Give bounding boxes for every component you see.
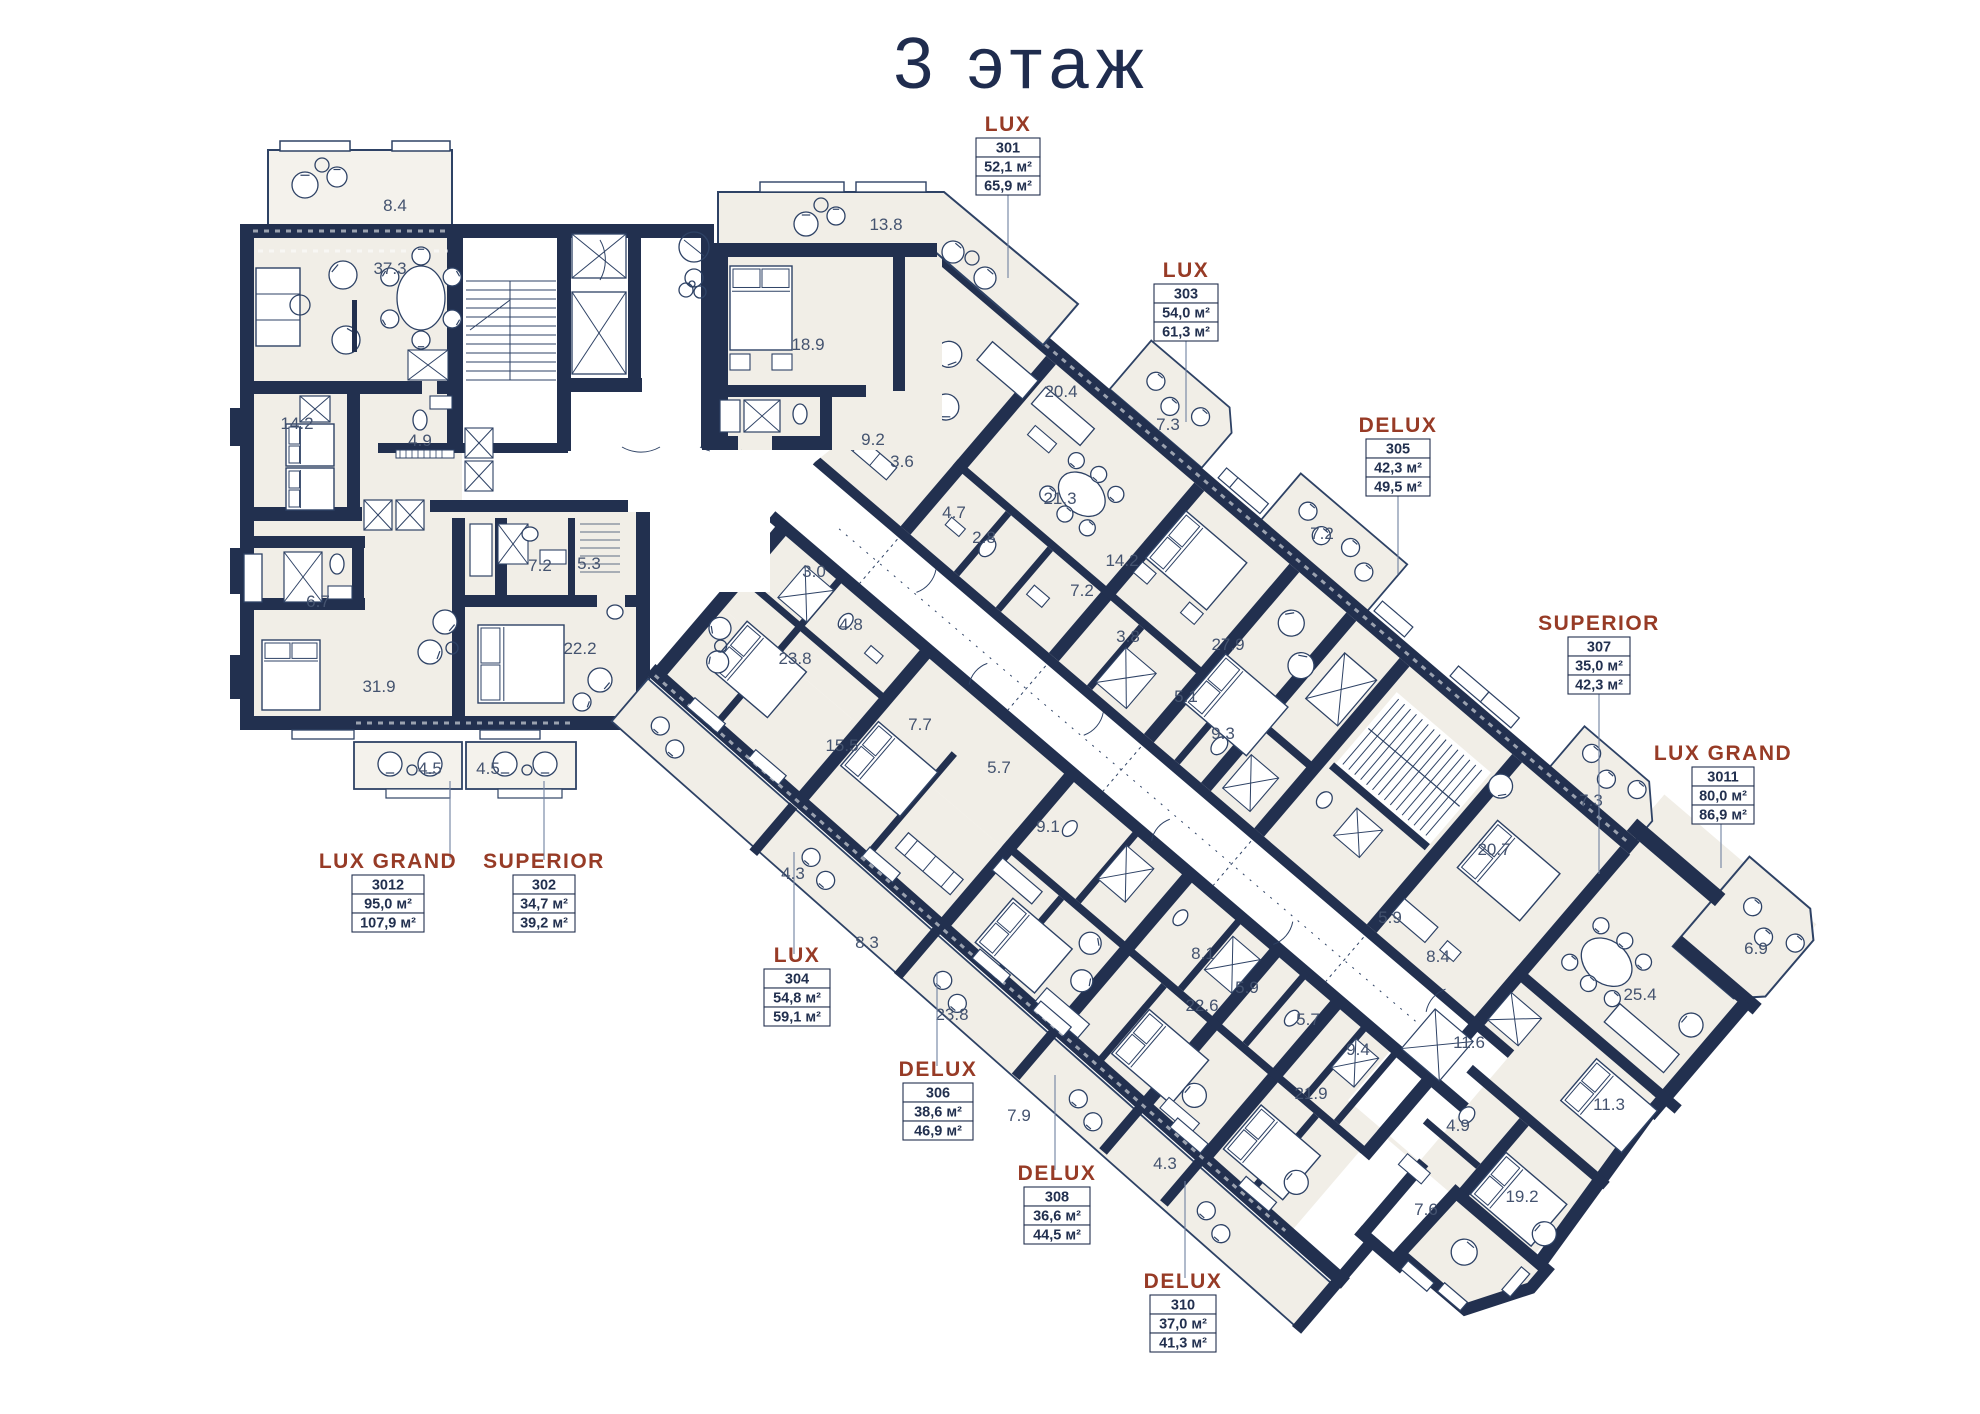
svg-text:7.9: 7.9 [1007,1106,1031,1125]
svg-text:11.6: 11.6 [1453,1033,1485,1052]
svg-text:4.8: 4.8 [839,615,863,634]
svg-text:308: 308 [1045,1190,1069,1206]
svg-text:2.8: 2.8 [972,528,996,547]
svg-text:3.6: 3.6 [890,452,914,471]
svg-text:9.3: 9.3 [1211,724,1235,743]
svg-text:42,3 м²: 42,3 м² [1374,461,1422,477]
svg-text:5.9: 5.9 [1378,908,1402,927]
svg-text:31.9: 31.9 [362,677,395,696]
svg-text:14.2: 14.2 [280,414,313,433]
svg-text:LUX: LUX [1163,259,1210,282]
svg-text:302: 302 [532,878,556,894]
svg-text:25.4: 25.4 [1623,985,1656,1004]
svg-text:306: 306 [926,1086,950,1102]
svg-text:54,0 м²: 54,0 м² [1162,306,1210,322]
svg-text:5.7: 5.7 [987,758,1011,777]
svg-text:7.6: 7.6 [1414,1200,1438,1219]
svg-text:61,3 м²: 61,3 м² [1162,325,1210,341]
svg-text:65,9 м²: 65,9 м² [984,179,1032,195]
svg-text:307: 307 [1587,640,1611,656]
svg-text:37,0 м²: 37,0 м² [1159,1317,1207,1333]
svg-text:4.5: 4.5 [418,759,442,778]
svg-text:3 этаж: 3 этаж [893,24,1151,104]
svg-text:7.2: 7.2 [1310,524,1334,543]
svg-text:80,0 м²: 80,0 м² [1699,789,1747,805]
svg-text:5.7: 5.7 [1296,1010,1320,1029]
svg-text:52,1 м²: 52,1 м² [984,160,1032,176]
svg-text:301: 301 [996,141,1020,157]
svg-text:4.5: 4.5 [476,759,500,778]
svg-text:23.8: 23.8 [778,649,811,668]
svg-text:49,5 м²: 49,5 м² [1374,480,1422,496]
svg-text:107,9 м²: 107,9 м² [360,916,416,932]
svg-text:22.6: 22.6 [1185,996,1218,1015]
svg-text:44,5 м²: 44,5 м² [1033,1228,1081,1244]
svg-text:23.8: 23.8 [935,1005,968,1024]
svg-text:SUPERIOR: SUPERIOR [1538,612,1660,635]
svg-text:7.2: 7.2 [528,556,552,575]
svg-text:41,3 м²: 41,3 м² [1159,1336,1207,1352]
svg-text:4.7: 4.7 [942,503,966,522]
svg-text:7.3: 7.3 [1156,415,1180,434]
svg-text:7.2: 7.2 [1070,581,1094,600]
svg-text:SUPERIOR: SUPERIOR [483,850,605,873]
svg-text:9.1: 9.1 [1036,817,1060,836]
svg-text:95,0 м²: 95,0 м² [364,897,412,913]
svg-text:8.4: 8.4 [1426,947,1450,966]
svg-text:19.2: 19.2 [1505,1187,1538,1206]
svg-text:3.0: 3.0 [802,562,826,581]
svg-text:4.3: 4.3 [781,864,805,883]
svg-text:3012: 3012 [372,878,404,894]
svg-text:20.7: 20.7 [1477,840,1510,859]
svg-text:86,9 м²: 86,9 м² [1699,808,1747,824]
svg-text:DELUX: DELUX [1359,414,1438,437]
svg-text:9.2: 9.2 [861,430,885,449]
svg-text:5.9: 5.9 [1235,978,1259,997]
svg-text:14.2: 14.2 [1105,551,1138,570]
svg-text:305: 305 [1386,442,1410,458]
svg-text:18.9: 18.9 [791,335,824,354]
svg-text:37.3: 37.3 [373,259,406,278]
svg-text:15.5: 15.5 [825,736,858,755]
svg-text:27.9: 27.9 [1211,635,1244,654]
svg-text:DELUX: DELUX [1018,1162,1097,1185]
svg-text:38,6 м²: 38,6 м² [914,1105,962,1121]
svg-text:5.3: 5.3 [577,554,601,573]
svg-text:13.8: 13.8 [869,215,902,234]
svg-text:20.4: 20.4 [1044,382,1077,401]
svg-text:9.4: 9.4 [1346,1040,1370,1059]
svg-text:4.3: 4.3 [1153,1154,1177,1173]
svg-text:11.3: 11.3 [1593,1095,1625,1114]
svg-text:310: 310 [1171,1298,1195,1314]
svg-text:LUX: LUX [985,113,1032,136]
svg-text:3.8: 3.8 [1116,627,1140,646]
svg-text:36,6 м²: 36,6 м² [1033,1209,1081,1225]
svg-text:54,8 м²: 54,8 м² [773,991,821,1007]
svg-text:59,1 м²: 59,1 м² [773,1010,821,1026]
svg-text:5.1: 5.1 [1174,687,1198,706]
svg-text:46,9 м²: 46,9 м² [914,1124,962,1140]
svg-text:42,3 м²: 42,3 м² [1575,678,1623,694]
svg-text:34,7 м²: 34,7 м² [520,897,568,913]
svg-text:303: 303 [1174,287,1198,303]
svg-text:21.3: 21.3 [1043,489,1076,508]
svg-text:DELUX: DELUX [1144,1270,1223,1293]
svg-text:4.9: 4.9 [408,431,432,450]
svg-text:LUX: LUX [774,944,821,967]
svg-text:4.9: 4.9 [1446,1116,1470,1135]
svg-text:DELUX: DELUX [899,1058,978,1081]
svg-text:39,2 м²: 39,2 м² [520,916,568,932]
svg-text:6.7: 6.7 [306,592,330,611]
svg-text:8.3: 8.3 [855,933,879,952]
svg-text:8.1: 8.1 [1191,944,1215,963]
svg-text:8.4: 8.4 [383,196,407,215]
svg-text:35,0 м²: 35,0 м² [1575,659,1623,675]
svg-text:21.9: 21.9 [1294,1084,1327,1103]
svg-text:6.9: 6.9 [1744,939,1768,958]
svg-text:LUX GRAND: LUX GRAND [319,850,457,873]
svg-text:304: 304 [785,972,809,988]
svg-text:7.7: 7.7 [908,715,932,734]
svg-text:22.2: 22.2 [563,639,596,658]
svg-text:LUX GRAND: LUX GRAND [1654,742,1792,765]
svg-text:3011: 3011 [1707,770,1738,786]
